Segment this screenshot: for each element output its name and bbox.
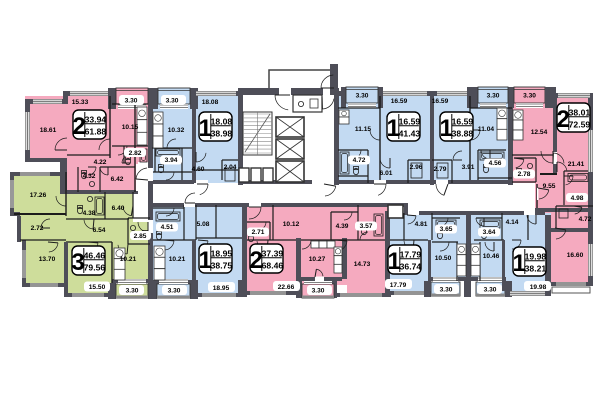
svg-text:38.88: 38.88 (452, 129, 474, 139)
svg-text:11.15: 11.15 (355, 126, 371, 133)
svg-text:61.88: 61.88 (85, 127, 107, 137)
svg-text:19.98: 19.98 (530, 284, 547, 291)
svg-text:6.40: 6.40 (112, 205, 125, 212)
svg-text:17.79: 17.79 (390, 282, 407, 289)
svg-text:16.59: 16.59 (399, 116, 421, 126)
svg-text:38.98: 38.98 (211, 129, 233, 139)
svg-text:15.33: 15.33 (72, 99, 89, 106)
svg-text:10.27: 10.27 (309, 256, 326, 263)
svg-text:3.30: 3.30 (487, 93, 500, 100)
svg-text:10.21: 10.21 (169, 256, 186, 263)
svg-text:38.21: 38.21 (525, 264, 547, 274)
svg-text:3.30: 3.30 (484, 287, 497, 294)
svg-text:2.79: 2.79 (434, 166, 447, 173)
svg-text:3.30: 3.30 (356, 93, 369, 100)
svg-text:16.60: 16.60 (567, 252, 584, 259)
svg-text:22.66: 22.66 (278, 284, 295, 291)
svg-text:4.22: 4.22 (94, 159, 107, 166)
svg-text:4.14: 4.14 (506, 219, 519, 226)
svg-text:18.95: 18.95 (211, 248, 233, 258)
svg-text:2.85: 2.85 (134, 233, 147, 240)
svg-text:5.08: 5.08 (197, 221, 210, 228)
svg-text:4.72: 4.72 (353, 157, 366, 164)
svg-text:41.43: 41.43 (399, 129, 421, 139)
svg-text:79.56: 79.56 (84, 263, 106, 273)
svg-text:18.08: 18.08 (202, 99, 219, 106)
svg-text:14.73: 14.73 (354, 261, 371, 268)
svg-text:3.30: 3.30 (166, 98, 179, 105)
svg-text:10.15: 10.15 (122, 124, 139, 131)
svg-text:3.94: 3.94 (165, 157, 178, 164)
svg-text:37.39: 37.39 (262, 248, 284, 258)
svg-text:19.98: 19.98 (525, 251, 547, 261)
svg-text:6.54: 6.54 (93, 227, 106, 234)
svg-text:2.04: 2.04 (224, 164, 237, 171)
svg-text:3.65: 3.65 (440, 226, 453, 233)
svg-text:18.08: 18.08 (211, 116, 233, 126)
svg-text:3.91: 3.91 (462, 164, 475, 171)
svg-text:11.04: 11.04 (478, 126, 494, 133)
svg-text:3.30: 3.30 (125, 98, 138, 105)
svg-text:3.30: 3.30 (312, 288, 325, 295)
svg-text:6.42: 6.42 (111, 176, 124, 183)
svg-text:4.39: 4.39 (336, 223, 349, 230)
svg-text:3.64: 3.64 (483, 229, 496, 236)
svg-text:4.32: 4.32 (83, 173, 96, 180)
svg-text:2.78: 2.78 (518, 171, 531, 178)
svg-text:9.55: 9.55 (543, 183, 556, 190)
svg-text:2.71: 2.71 (252, 229, 265, 236)
svg-text:4.56: 4.56 (489, 160, 502, 167)
svg-text:4.51: 4.51 (161, 224, 174, 231)
svg-text:4.98: 4.98 (571, 195, 584, 202)
svg-text:21.41: 21.41 (568, 161, 585, 168)
svg-text:10.46: 10.46 (483, 253, 500, 260)
svg-text:15.50: 15.50 (89, 284, 106, 291)
svg-text:2.82: 2.82 (129, 150, 142, 157)
svg-text:3.30: 3.30 (126, 288, 139, 295)
svg-text:16.59: 16.59 (391, 98, 408, 105)
svg-text:33.94: 33.94 (85, 114, 107, 124)
svg-text:38.75: 38.75 (211, 261, 233, 271)
svg-text:10.32: 10.32 (168, 127, 185, 134)
svg-text:72.59: 72.59 (569, 120, 591, 130)
svg-text:46.46: 46.46 (84, 250, 106, 260)
svg-text:10.21: 10.21 (120, 256, 137, 263)
svg-text:18.95: 18.95 (213, 285, 230, 292)
svg-text:17.26: 17.26 (30, 192, 47, 199)
svg-text:3.30: 3.30 (523, 93, 536, 100)
svg-text:36.74: 36.74 (400, 262, 422, 272)
svg-text:4.81: 4.81 (415, 221, 428, 228)
svg-text:4.72: 4.72 (579, 216, 592, 223)
svg-text:4.38: 4.38 (83, 210, 96, 217)
svg-text:13.70: 13.70 (39, 256, 56, 263)
svg-text:3.57: 3.57 (360, 223, 373, 230)
svg-text:38.01: 38.01 (569, 107, 591, 117)
svg-text:68.46: 68.46 (262, 261, 284, 271)
svg-text:6.01: 6.01 (380, 170, 393, 177)
svg-text:10.12: 10.12 (283, 221, 300, 228)
svg-text:3.30: 3.30 (440, 287, 453, 294)
svg-text:10.50: 10.50 (435, 255, 452, 262)
svg-text:3.30: 3.30 (168, 288, 181, 295)
svg-text:16.59: 16.59 (432, 98, 449, 105)
svg-text:12.54: 12.54 (531, 129, 548, 136)
svg-text:18.61: 18.61 (40, 127, 57, 134)
svg-text:2.72: 2.72 (31, 225, 44, 232)
svg-text:16.59: 16.59 (452, 116, 474, 126)
svg-text:4.60: 4.60 (192, 166, 205, 173)
svg-text:2.96: 2.96 (410, 164, 423, 171)
svg-text:17.79: 17.79 (400, 249, 422, 259)
